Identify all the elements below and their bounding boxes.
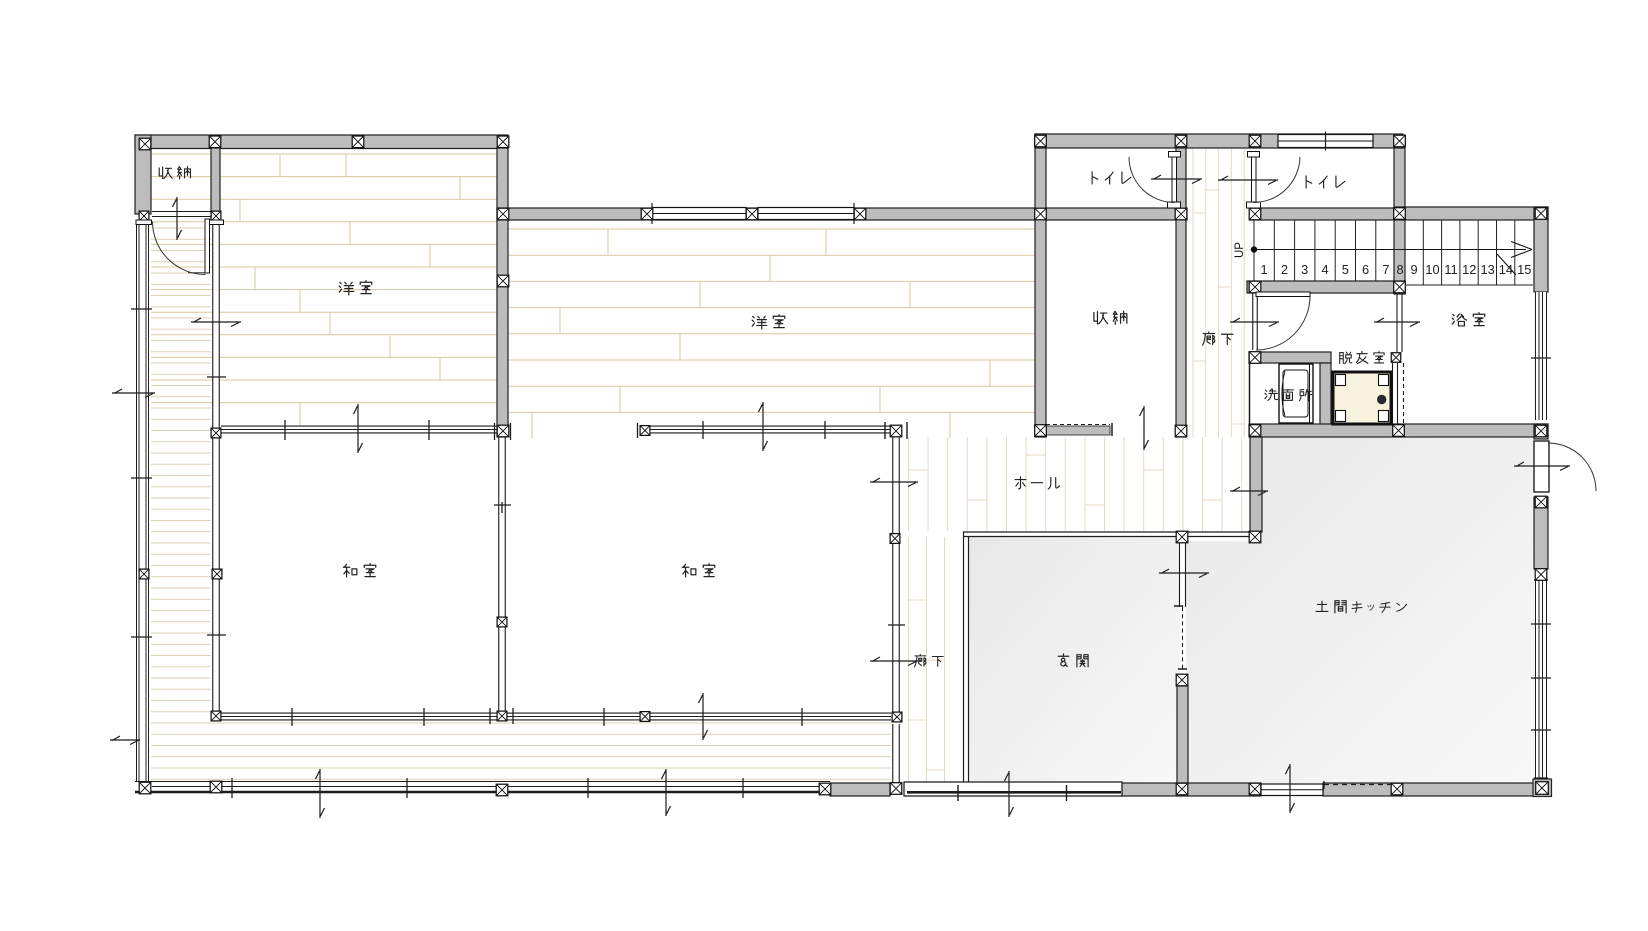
svg-text:10: 10 — [1425, 262, 1439, 277]
svg-text:11: 11 — [1444, 262, 1457, 277]
svg-text:UP: UP — [1234, 242, 1246, 258]
svg-text:9: 9 — [1410, 262, 1417, 277]
svg-text:5: 5 — [1342, 262, 1349, 277]
svg-text:6: 6 — [1362, 262, 1369, 277]
svg-text:4: 4 — [1321, 262, 1328, 277]
svg-text:13: 13 — [1480, 262, 1494, 277]
svg-text:8: 8 — [1396, 262, 1403, 277]
svg-text:14: 14 — [1499, 262, 1513, 277]
svg-text:15: 15 — [1517, 262, 1531, 277]
svg-text:2: 2 — [1281, 262, 1288, 277]
svg-text:3: 3 — [1301, 262, 1308, 277]
svg-text:12: 12 — [1462, 262, 1476, 277]
svg-text:1: 1 — [1260, 262, 1267, 277]
svg-text:7: 7 — [1382, 262, 1389, 277]
